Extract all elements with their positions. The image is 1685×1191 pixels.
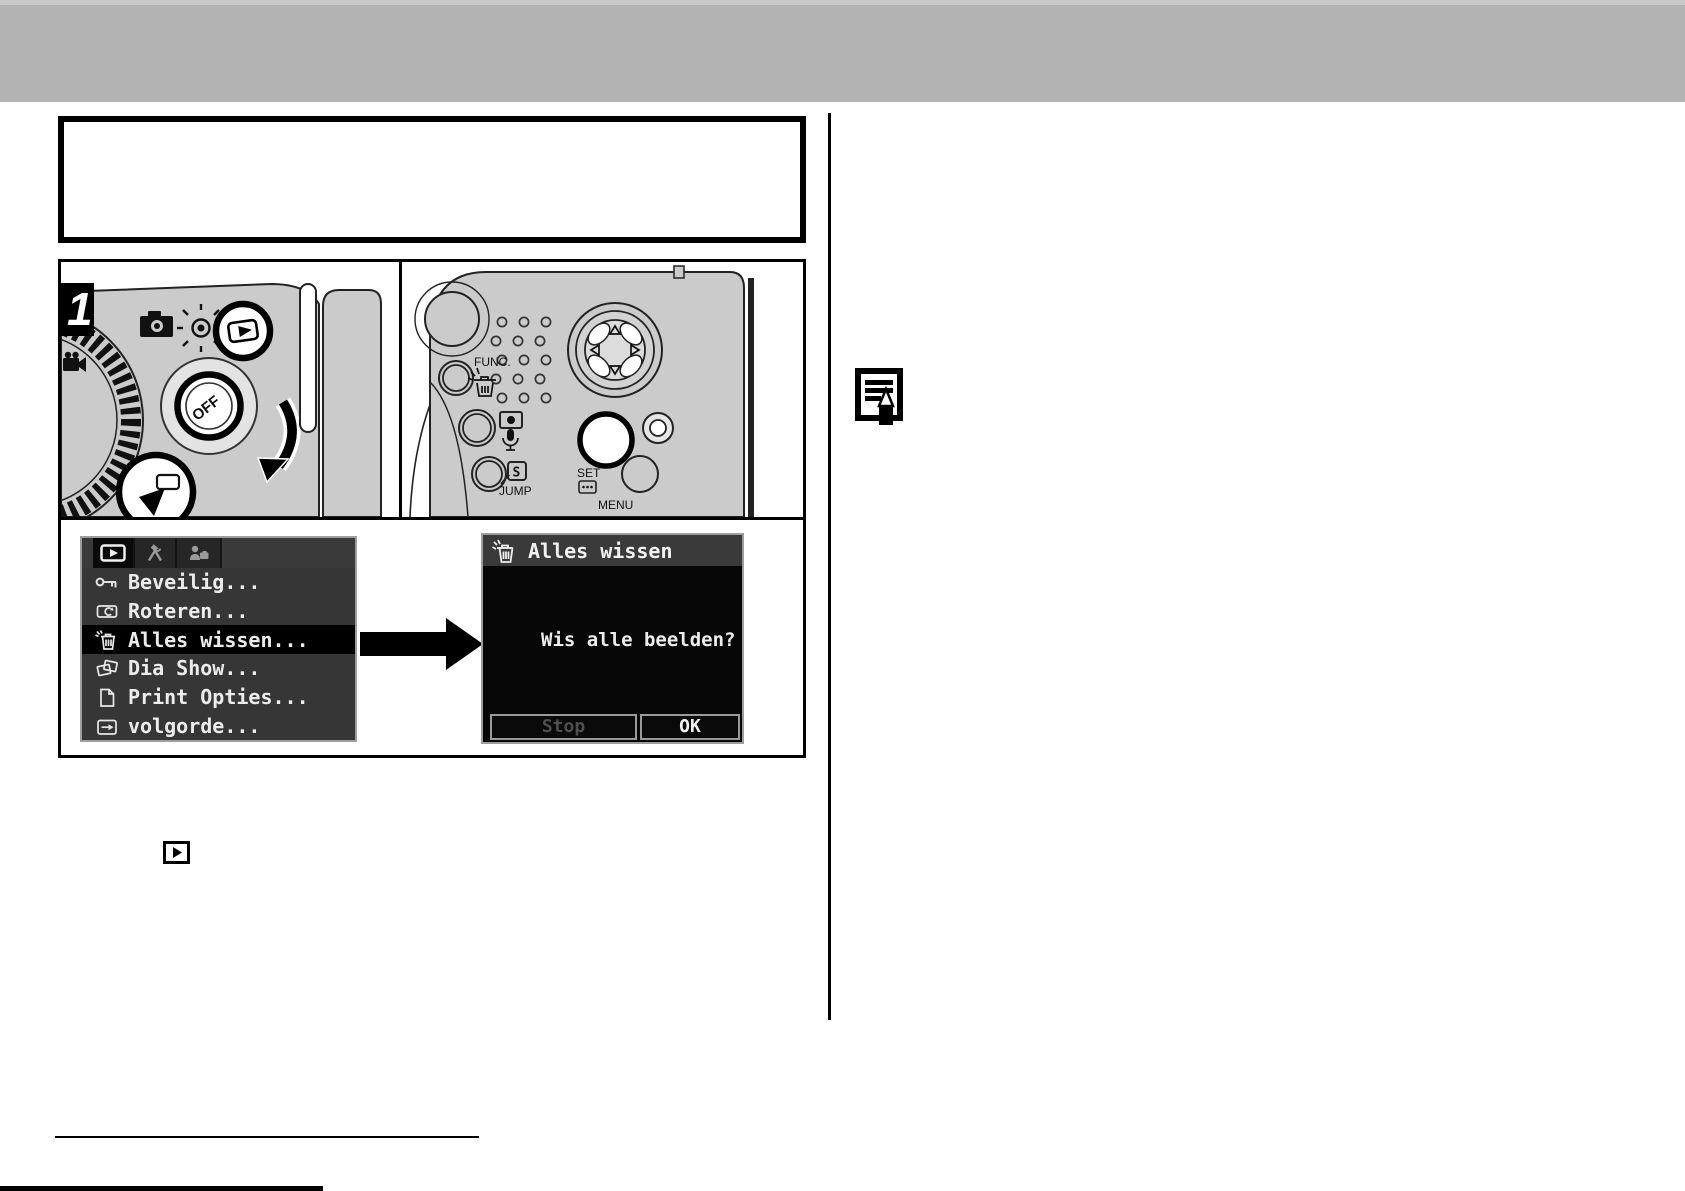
confirm-title: Alles wissen bbox=[528, 539, 673, 563]
erase-all-icon bbox=[492, 538, 516, 564]
tab-playback bbox=[93, 538, 135, 568]
lcd-confirm-screen: Alles wissen Wis alle beelden? Stop OK bbox=[483, 535, 742, 742]
set-label: SET bbox=[577, 466, 601, 480]
step-number-badge: 1 bbox=[61, 283, 94, 336]
rotate-icon bbox=[95, 600, 119, 622]
body-edge bbox=[748, 278, 754, 517]
camera-top-illustration: OFF 1 bbox=[61, 262, 399, 517]
confirm-message: Wis alle beelden? bbox=[541, 629, 735, 651]
figure-horizontal-divider bbox=[61, 517, 803, 520]
manual-page: OFF 1 bbox=[0, 0, 1685, 1191]
menu-item-label: Beveilig... bbox=[128, 570, 260, 594]
jump-label: JUMP bbox=[499, 484, 532, 498]
menu-item-label: Dia Show... bbox=[128, 656, 260, 680]
tab-bar-rest bbox=[222, 538, 355, 568]
playback-mode-icon bbox=[163, 841, 190, 864]
menu-tab-bar bbox=[82, 538, 355, 568]
func-label: FUNC. bbox=[474, 355, 511, 369]
menu-item-label: volgorde... bbox=[128, 714, 260, 738]
menu-item-protect: Beveilig... bbox=[82, 568, 355, 597]
step-number: 1 bbox=[67, 283, 93, 335]
top-notch bbox=[674, 266, 684, 278]
display-button bbox=[459, 410, 495, 446]
page-bottom-bar bbox=[0, 1186, 323, 1191]
playback-icon bbox=[100, 543, 126, 563]
stop-button: Stop bbox=[490, 714, 637, 740]
key-icon bbox=[95, 571, 119, 593]
menu-item-label: Print Opties... bbox=[128, 685, 309, 709]
page-header-bar bbox=[0, 0, 1685, 102]
tab-bar-spacer bbox=[82, 538, 93, 568]
lever-highlight bbox=[119, 455, 193, 517]
confirm-header: Alles wissen bbox=[483, 535, 742, 566]
menu-item-label: Alles wissen... bbox=[128, 628, 309, 652]
footnote-rule bbox=[55, 1136, 479, 1138]
menu-button bbox=[622, 456, 658, 492]
menu-label: MENU bbox=[598, 498, 633, 512]
nav-pad bbox=[568, 303, 662, 397]
func-button bbox=[439, 361, 473, 395]
menu-item-rotate: Roteren... bbox=[82, 597, 355, 626]
erase-all-icon bbox=[95, 629, 119, 651]
menu-item-print-options: Print Opties... bbox=[82, 683, 355, 712]
power-off-button: OFF bbox=[161, 358, 257, 454]
menu-item-label: Roteren... bbox=[128, 599, 248, 623]
ok-button: OK bbox=[640, 714, 740, 740]
tab-my-camera bbox=[177, 538, 222, 568]
print-icon bbox=[95, 686, 119, 708]
slideshow-icon bbox=[95, 657, 119, 679]
intro-box bbox=[58, 116, 806, 243]
menu-item-list: Beveilig... Roteren... bbox=[82, 568, 355, 740]
tools-icon bbox=[142, 543, 168, 563]
menu-item-slideshow: Dia Show... bbox=[82, 654, 355, 683]
aux-button bbox=[643, 413, 673, 443]
set-button bbox=[580, 414, 632, 466]
playback-mode-highlight bbox=[216, 304, 270, 358]
print-order-icon bbox=[95, 715, 119, 737]
column-divider bbox=[828, 113, 831, 1020]
figure-box: OFF 1 bbox=[58, 259, 806, 758]
lcd-menu-screen: Beveilig... Roteren... bbox=[82, 538, 355, 740]
tab-setup bbox=[135, 538, 177, 568]
jump-s-label: S bbox=[513, 466, 521, 481]
camera-back-illustration: FUNC. bbox=[402, 262, 803, 517]
memo-pencil-icon bbox=[855, 368, 903, 425]
menu-item-print-order: volgorde... bbox=[82, 711, 355, 740]
menu-item-erase-all: Alles wissen... bbox=[82, 625, 355, 654]
flow-arrow-icon bbox=[360, 618, 484, 670]
slot-detail bbox=[300, 284, 316, 432]
my-camera-icon bbox=[186, 543, 212, 563]
